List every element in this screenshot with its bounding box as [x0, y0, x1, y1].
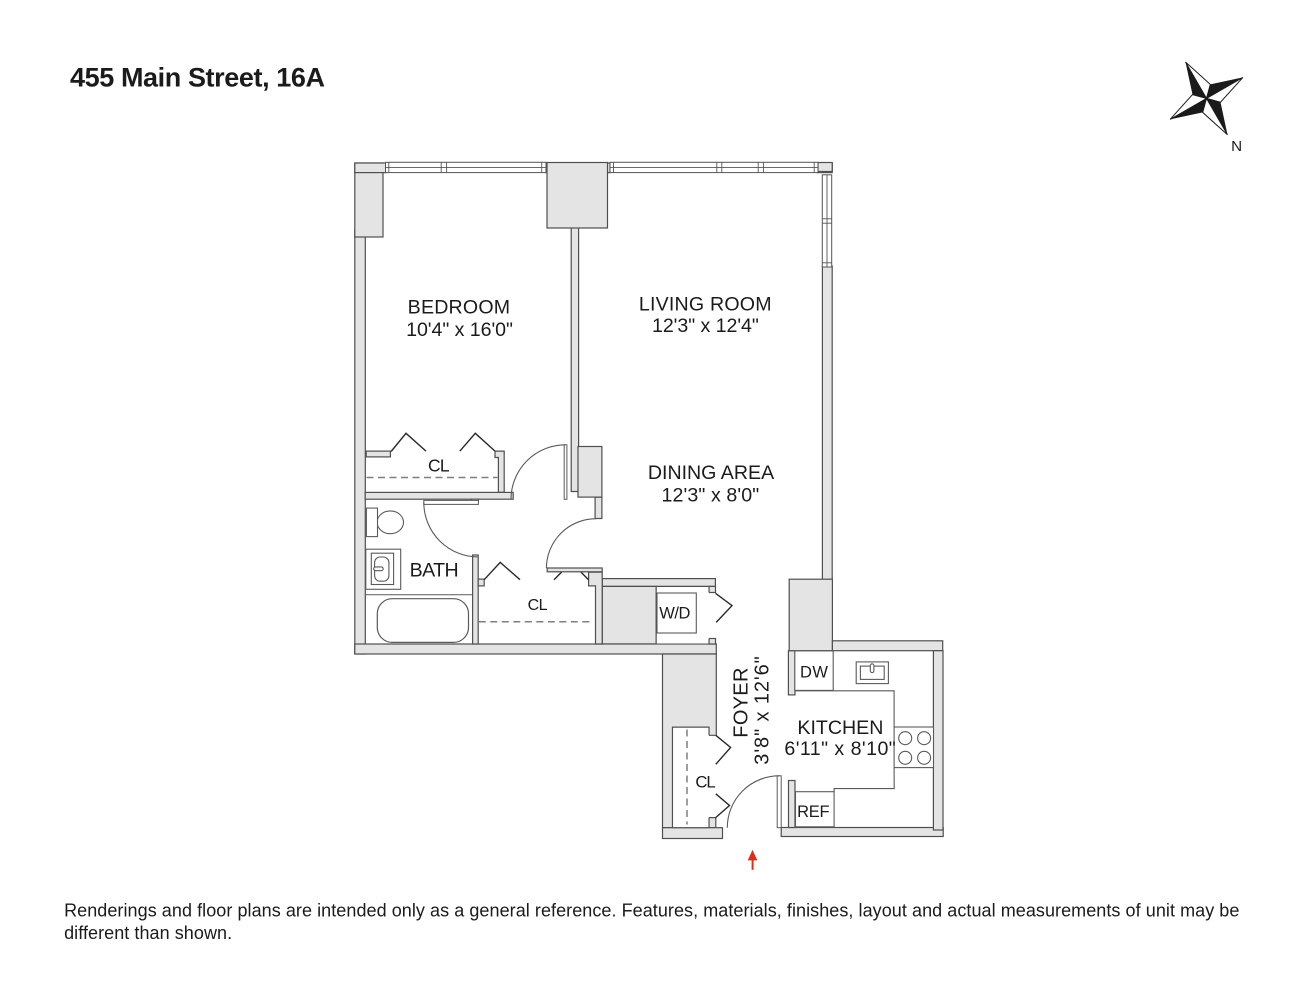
svg-text:different than shown.: different than shown. [64, 923, 232, 943]
svg-text:3'8" x 12'6": 3'8" x 12'6" [752, 655, 774, 764]
svg-text:REF: REF [797, 803, 829, 821]
svg-text:12'3" x 8'0": 12'3" x 8'0" [662, 484, 760, 506]
svg-text:BATH: BATH [410, 560, 458, 582]
svg-text:6'11" x 8'10": 6'11" x 8'10" [784, 738, 896, 760]
svg-text:BEDROOM: BEDROOM [408, 297, 511, 319]
svg-text:CL: CL [695, 773, 715, 792]
svg-text:DW: DW [800, 663, 829, 681]
svg-text:CL: CL [428, 456, 450, 476]
svg-text:Renderings and floor plans are: Renderings and floor plans are intended … [64, 900, 1239, 920]
svg-text:10'4" x 16'0": 10'4" x 16'0" [406, 319, 513, 341]
svg-text:DINING AREA: DINING AREA [648, 462, 775, 484]
svg-text:KITCHEN: KITCHEN [797, 717, 883, 739]
svg-text:CL: CL [528, 597, 548, 614]
svg-text:FOYER: FOYER [731, 667, 753, 737]
svg-text:W/D: W/D [659, 605, 690, 623]
svg-text:LIVING ROOM: LIVING ROOM [639, 293, 772, 315]
svg-text:12'3" x 12'4": 12'3" x 12'4" [652, 315, 759, 337]
svg-text:N: N [1231, 138, 1242, 155]
svg-text:455 Main Street, 16A: 455 Main Street, 16A [70, 63, 325, 93]
